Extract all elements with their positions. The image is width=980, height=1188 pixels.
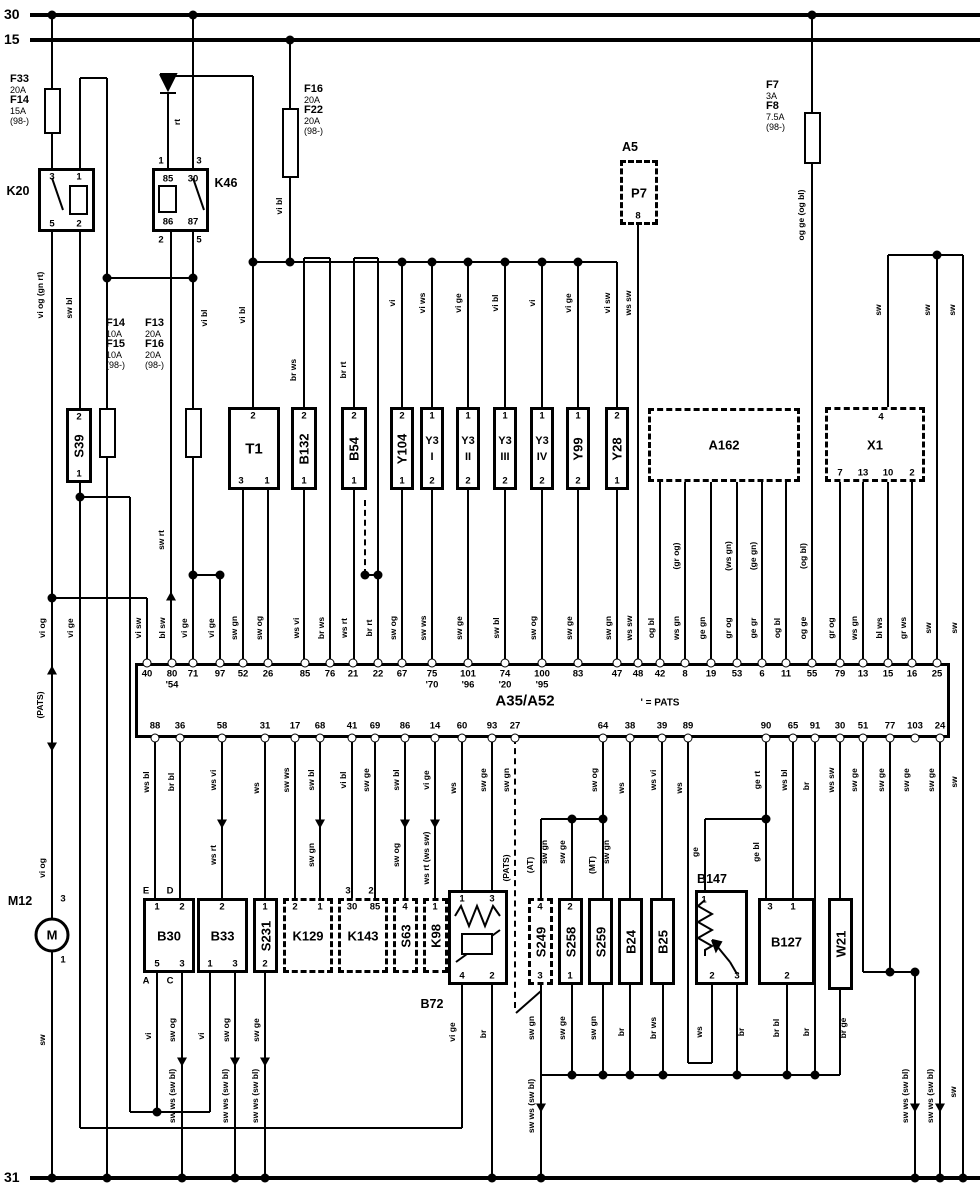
coil-icon — [70, 186, 87, 214]
wiring-diagram-canvas: 301531F3320AF1415A(98-)F1620AF2220A(98-)… — [0, 0, 980, 1188]
diode-icon — [160, 74, 176, 90]
symbol-line — [698, 900, 712, 956]
component-id-M12: M12 — [8, 894, 32, 908]
symbol-line — [193, 178, 204, 210]
coil-icon — [159, 186, 176, 212]
symbol-line — [730, 962, 737, 974]
symbol-line — [516, 991, 541, 1013]
symbol-overlay — [0, 0, 980, 1188]
coil-icon — [462, 934, 492, 954]
motor-m-label: M — [47, 928, 58, 943]
symbol-line — [455, 906, 500, 926]
symbol-line — [52, 178, 63, 210]
